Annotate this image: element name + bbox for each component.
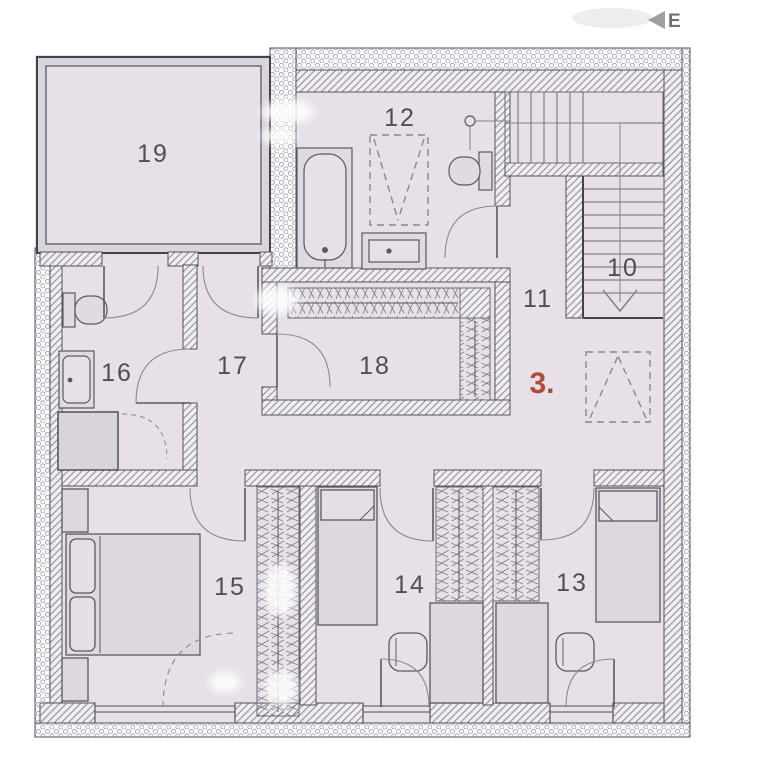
nightstand-icon — [62, 658, 88, 701]
shower-unit-icon — [58, 412, 118, 470]
pillow-icon — [70, 539, 95, 593]
wardrobe-13 — [493, 487, 539, 601]
room-label-15: 15 — [214, 573, 246, 601]
room-label-11: 11 — [523, 285, 553, 313]
watermark-letter: E — [668, 11, 681, 32]
pillow-icon — [321, 490, 374, 520]
toilet-tank-icon — [479, 152, 492, 190]
room-label-19: 19 — [137, 140, 169, 168]
toilet-icon — [75, 296, 107, 324]
unit-number-label: 3. — [529, 367, 554, 400]
watermark: E — [572, 8, 681, 32]
chair-icon — [389, 633, 427, 671]
nightstand-icon — [62, 489, 88, 532]
room-label-16: 16 — [101, 359, 133, 387]
desk-icon — [496, 603, 548, 703]
room-label-10: 10 — [607, 254, 639, 282]
room-label-18: 18 — [359, 352, 391, 380]
toilet-tank-icon — [63, 293, 75, 327]
room-label-17: 17 — [217, 352, 249, 380]
room-label-12: 12 — [384, 104, 416, 132]
pillow-icon — [70, 597, 95, 651]
room-label-13: 13 — [556, 569, 588, 597]
floor-plan-page: 19 12 10 11 16 17 18 15 14 13 3. E — [0, 0, 773, 764]
wardrobe-14 — [436, 487, 483, 601]
desk-icon — [430, 603, 483, 703]
room-label-14: 14 — [394, 571, 426, 599]
pillow-icon — [599, 491, 657, 521]
watermark-arrow-icon — [648, 11, 665, 29]
floor-plan: 19 12 10 11 16 17 18 15 14 13 3. E — [0, 0, 773, 764]
chair-icon — [556, 633, 594, 671]
toilet-icon — [449, 157, 480, 185]
